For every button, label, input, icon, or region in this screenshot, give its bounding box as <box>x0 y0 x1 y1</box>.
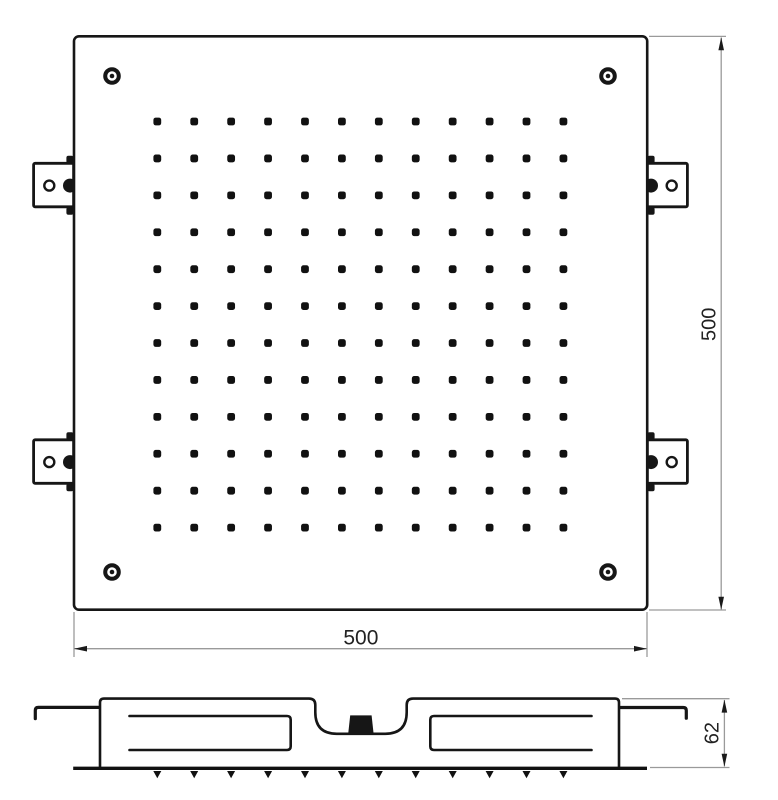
svg-text:500: 500 <box>698 308 720 341</box>
svg-text:62: 62 <box>702 722 724 744</box>
svg-text:500: 500 <box>343 627 378 650</box>
